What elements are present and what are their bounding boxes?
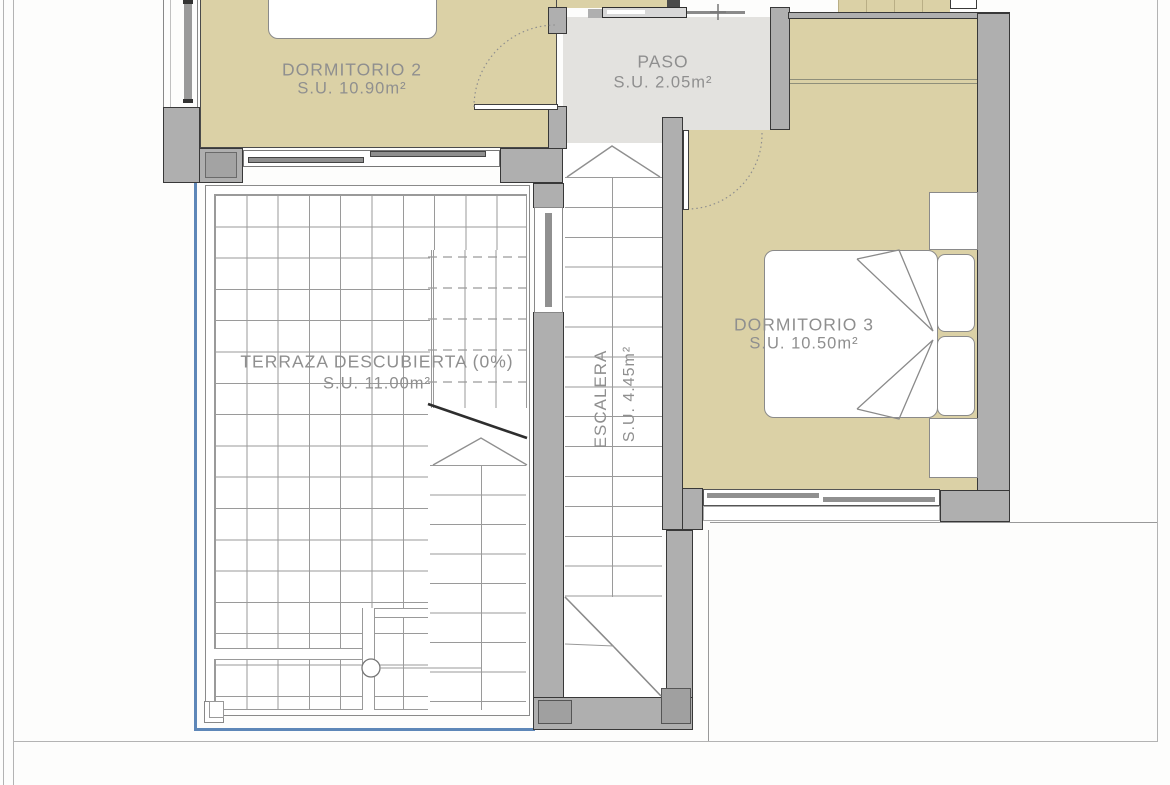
dorm2-bed [268, 0, 437, 39]
terraza-area: S.U. 11.00m² [323, 375, 431, 394]
dorm3-nightstand-bottom [929, 418, 978, 478]
dorm2-door-leaf [474, 104, 558, 110]
wall-dorm3-bottom-right-pillar [940, 490, 1010, 522]
dorm2-left-window-frame-inner [197, 0, 198, 107]
dorm3-window-glazing1 [707, 493, 819, 498]
wall-dorm2-paso-jamb-bottom [548, 106, 567, 149]
wall-dorm3-right [977, 13, 1010, 522]
dorm3-window-sill [703, 506, 940, 521]
dorm3-door-leaf [683, 130, 689, 210]
dormitorio2-label: DORMITORIO 2 [282, 60, 422, 81]
wall-stair-right [662, 117, 683, 530]
stair-window-glazing [545, 213, 552, 307]
dorm2-left-window-frame-outer [163, 0, 164, 107]
terrace-walkway-vertical [362, 608, 375, 710]
dorm2-left-window-cap-top [183, 0, 193, 4]
wall-stair-bottom-pillar-left [538, 700, 572, 724]
dorm2-slider-panel1 [248, 157, 364, 163]
terrace-edge-blue-bottom [194, 728, 535, 731]
wall-dorm2-corner-L-vertical [163, 107, 200, 183]
wardrobe-shelf-line2 [790, 83, 977, 84]
terrace-edge-blue-left [194, 183, 197, 731]
wall-stair-bottom-pillar-right [661, 688, 691, 724]
dorm2-left-window-cap-bottom [183, 99, 193, 103]
escalera-centerline [612, 177, 613, 597]
terrace-stair-steps [430, 465, 526, 710]
dormitorio3-area: S.U. 10.50m² [749, 335, 858, 354]
dorm2-left-window-glazing [184, 3, 192, 101]
fixture-above-dorm3 [950, 0, 977, 9]
escalera-steps [565, 177, 662, 597]
terrace-walkway-upper [375, 608, 428, 618]
floor-plan: DORMITORIO 2 S.U. 10.90m² PASO S.U. 2.05… [0, 0, 1170, 785]
dorm2-slider-panel2 [370, 151, 486, 157]
wall-dorm2-corner-pillar-inset [205, 152, 237, 178]
terrace-walkway-horizontal [214, 648, 366, 660]
paso-sliding-door-panel-stripe [607, 10, 645, 14]
wall-stair-left-upper [533, 183, 564, 208]
dorm3-window-glazing2 [823, 497, 935, 502]
dorm3-bed-pillow-top [937, 254, 975, 332]
sheet-frame-bottom [13, 741, 1157, 742]
paso-sliding-door-track [687, 11, 745, 14]
terraza-label: TERRAZA DESCUBIERTA (0%) [240, 352, 513, 373]
wall-dorm2-paso-jamb-top [548, 7, 567, 34]
wall-dorm2-slider-right-pillar [500, 148, 563, 183]
dormitorio2-area: S.U. 10.90m² [297, 80, 406, 99]
dormitorio3-wardrobe-floor [790, 17, 977, 130]
dorm3-nightstand-top [929, 192, 978, 250]
paso-label: PASO [637, 52, 688, 73]
escalera-label: ESCALERA [591, 350, 611, 449]
dorm3-bed-pillow-bottom [937, 336, 975, 416]
sheet-frame-right [1157, 0, 1158, 742]
escalera-area: S.U. 4.45m² [621, 346, 639, 442]
wall-stair-left-lower [533, 312, 564, 698]
wardrobe-shelf-line [790, 79, 977, 80]
sheet-frame-left-inner [13, 0, 14, 785]
sheet-frame-left-outer [3, 0, 4, 785]
terrace-drain-box-inner [209, 701, 224, 718]
dorm2-left-window-frame-mid [170, 0, 171, 107]
wall-paso-dorm3 [770, 7, 790, 130]
ground-projection-line-h [710, 522, 1157, 523]
dormitorio3-label: DORMITORIO 3 [734, 315, 874, 336]
terrace-dashed-zone [430, 250, 526, 408]
terrace-stair-centerline [481, 465, 482, 710]
ground-projection-line-v [708, 530, 709, 741]
paso-area: S.U. 2.05m² [613, 74, 712, 93]
